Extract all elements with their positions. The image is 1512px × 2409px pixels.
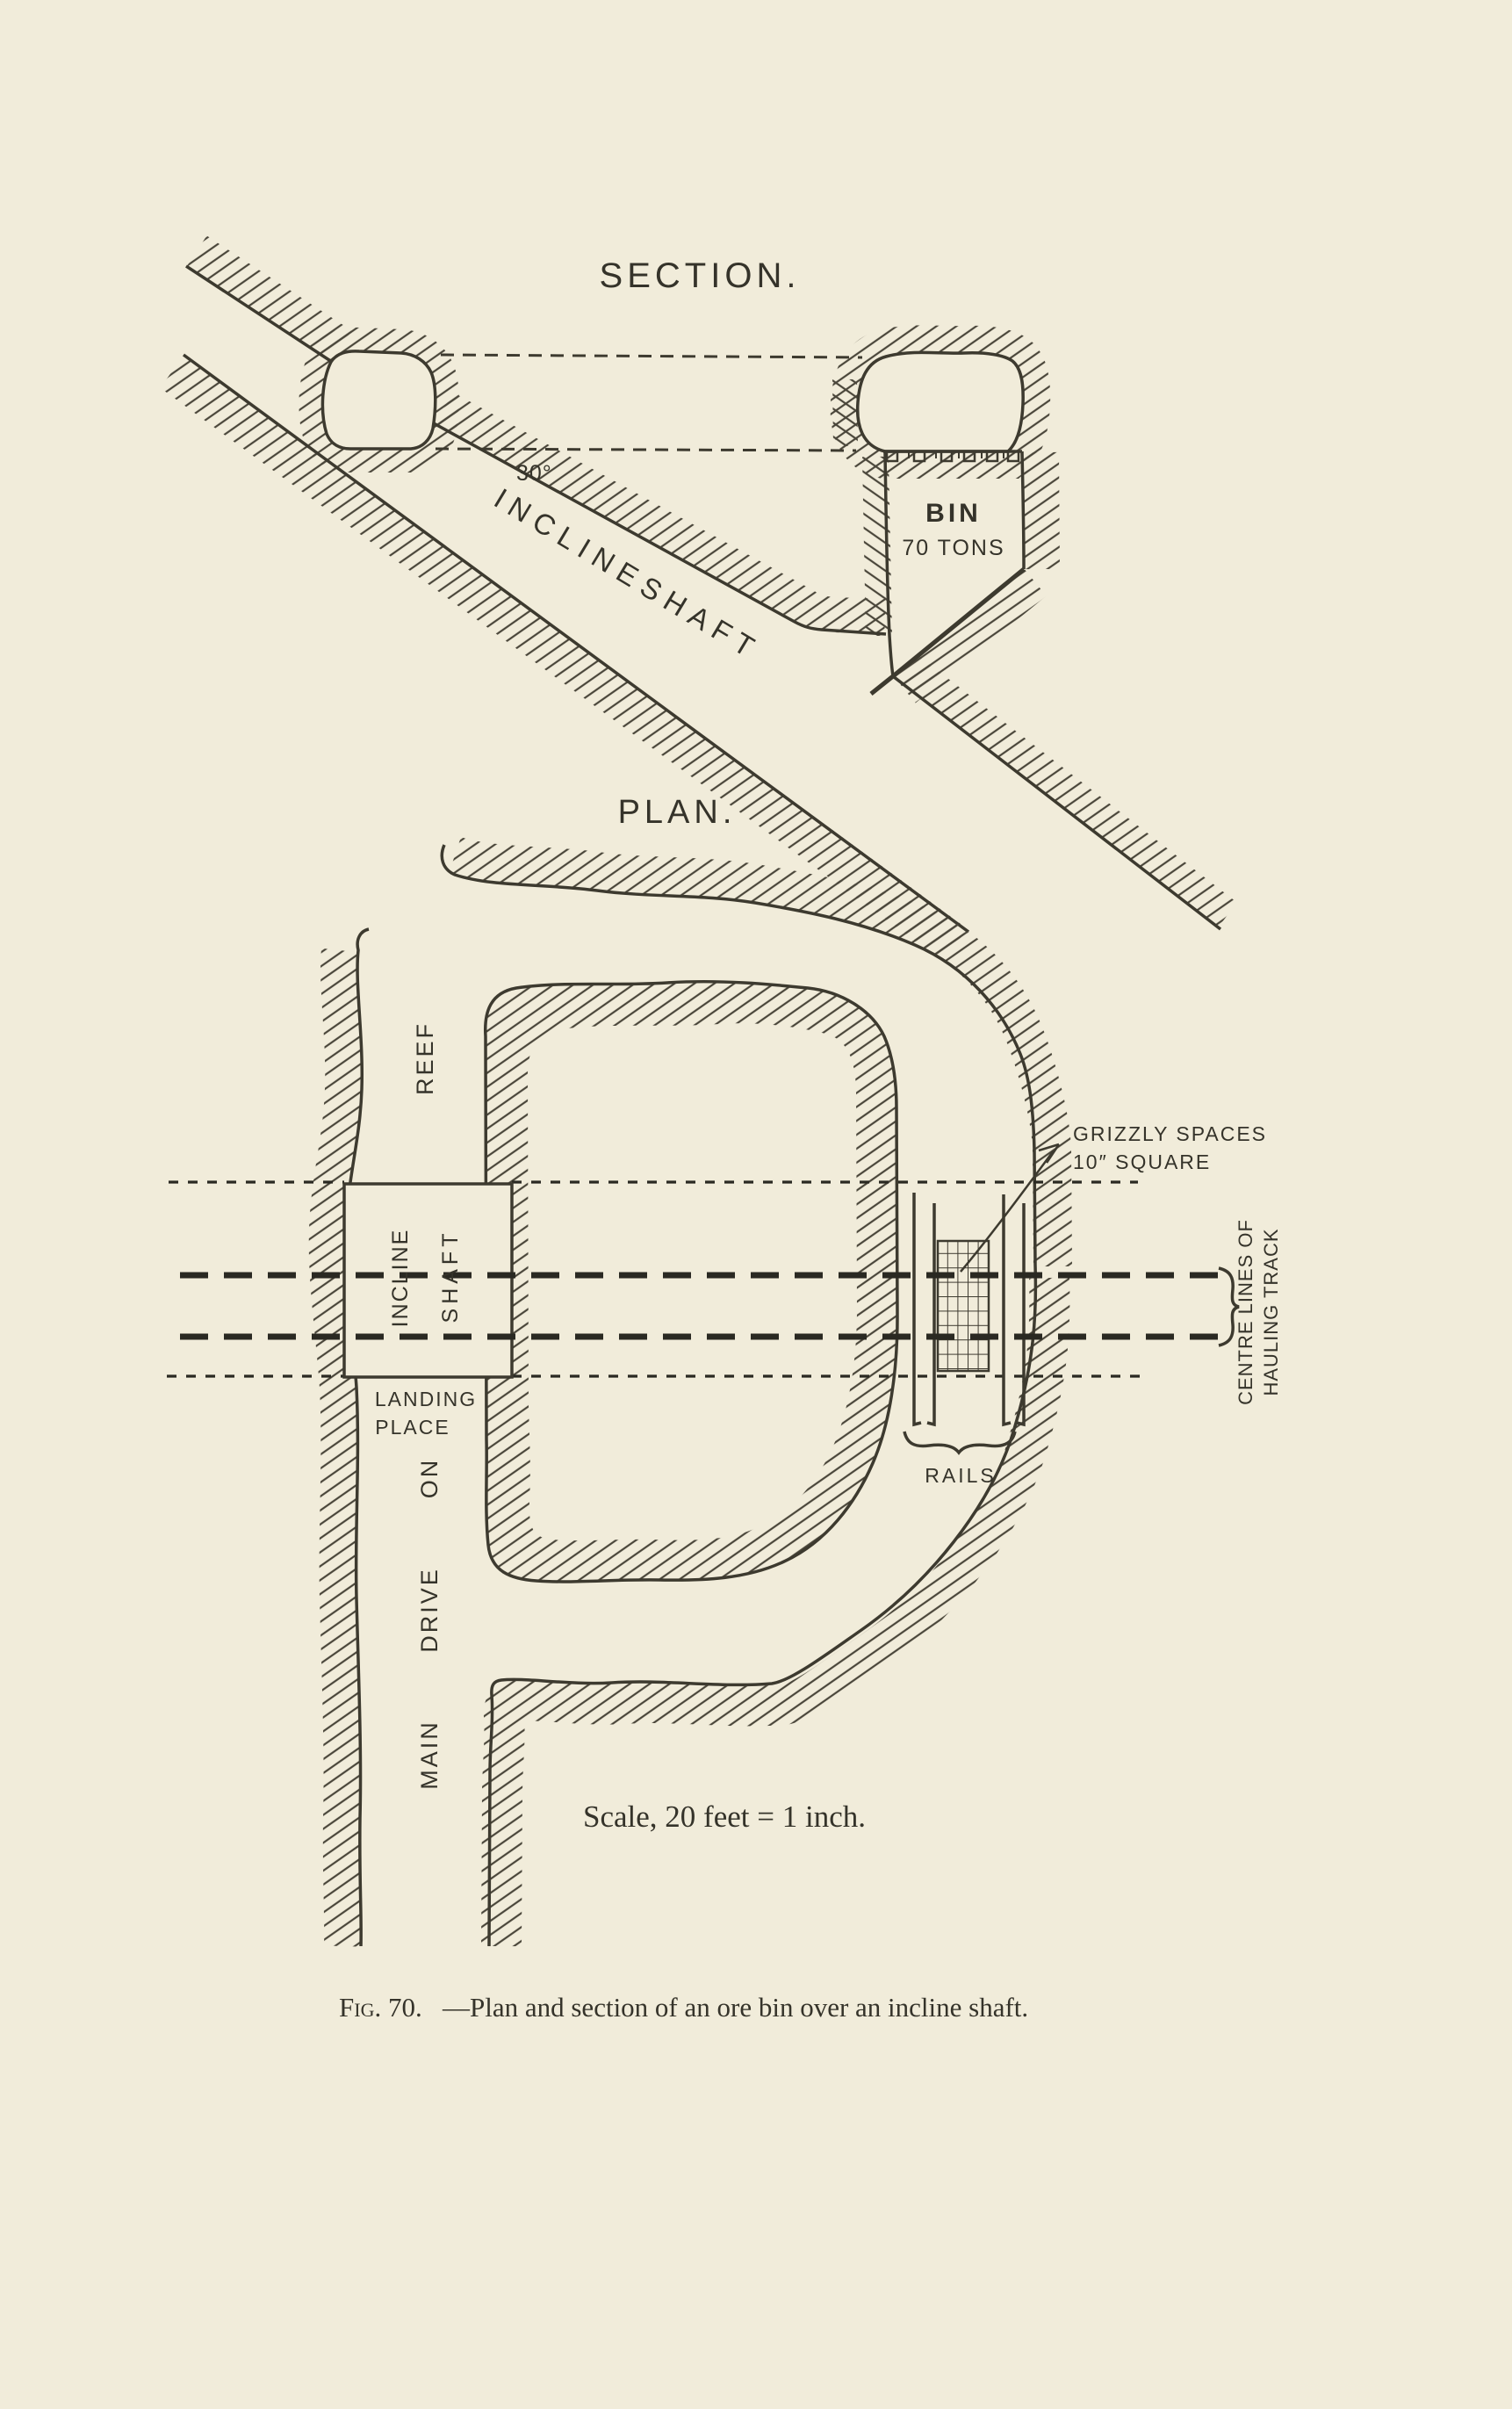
centre-lines-label1: CENTRE LINES OF: [1235, 1219, 1256, 1405]
plan-title: PLAN.: [618, 794, 737, 831]
rail-line: [1004, 1194, 1011, 1424]
bin-chamber: [858, 352, 1024, 451]
grizzly-grid: [938, 1241, 989, 1371]
figure-70-drawing: SECTION. 30° INCLINE SHAFT BIN 70 TONS: [0, 0, 1512, 2409]
incline-upper-wall-below-bin: [893, 676, 1220, 929]
rail-line: [1017, 1203, 1024, 1424]
drive-word-top: ON: [416, 1458, 443, 1499]
section-title: SECTION.: [600, 256, 801, 295]
scale-note: Scale, 20 feet = 1 inch.: [583, 1800, 866, 1834]
landing-word2: PLACE: [375, 1416, 450, 1439]
hatch-band-reef-left: [328, 950, 344, 1946]
grizzly-note-line2: 10″ SQUARE: [1073, 1150, 1211, 1173]
rail-line: [927, 1203, 934, 1424]
rail-line: [914, 1193, 921, 1424]
caption-prefix: Fig. 70.: [339, 1992, 422, 2023]
hatch-band: [1041, 452, 1042, 569]
rails-label: RAILS: [925, 1464, 996, 1487]
hatch-ring-island: [486, 982, 897, 1582]
caption-text: —Plan and section of an ore bin over an …: [442, 1992, 1028, 2023]
station-chamber: [322, 351, 435, 449]
shaft-box-word1: INCLINE: [388, 1229, 413, 1328]
hatch-band: [197, 251, 342, 346]
bin-right-wall: [1022, 451, 1024, 569]
hatch-band-outer-return: [501, 1278, 1049, 1946]
section-view: SECTION. 30° INCLINE SHAFT BIN 70 TONS: [172, 251, 1228, 945]
bin-label: BIN: [925, 499, 982, 528]
rails-brace: [904, 1432, 1015, 1453]
bin-capacity: 70 TONS: [902, 536, 1004, 560]
hatch-band: [845, 379, 846, 446]
shaft-box-word2: SHAFT: [438, 1230, 463, 1324]
hatch-band-outer-top: [455, 855, 1053, 1266]
plan-view: PLAN. REEF INCLINE SHAFT LANDING PLACE O…: [167, 794, 1282, 1946]
hatch-band: [904, 664, 1228, 915]
landing-word1: LANDING: [375, 1388, 477, 1410]
drive-word-mid: DRIVE: [416, 1567, 443, 1653]
angle-label: 30°: [516, 461, 552, 486]
reef-label: REEF: [412, 1021, 438, 1095]
bin-discharge-spur: [871, 676, 893, 694]
figure-caption: Fig. 70. —Plan and section of an ore bin…: [339, 1992, 1028, 2023]
scanned-book-plate: SECTION. 30° INCLINE SHAFT BIN 70 TONS: [0, 0, 1512, 2409]
hatch-band: [875, 457, 879, 636]
chamber-projection-dashed-top: [441, 355, 862, 357]
incline-shaft-box: [344, 1184, 512, 1377]
centre-lines-label2: HAULING TRACK: [1260, 1228, 1282, 1396]
drive-word-bottom: MAIN: [416, 1720, 443, 1790]
grizzly-note-line1: GRIZZLY SPACES: [1073, 1122, 1267, 1145]
